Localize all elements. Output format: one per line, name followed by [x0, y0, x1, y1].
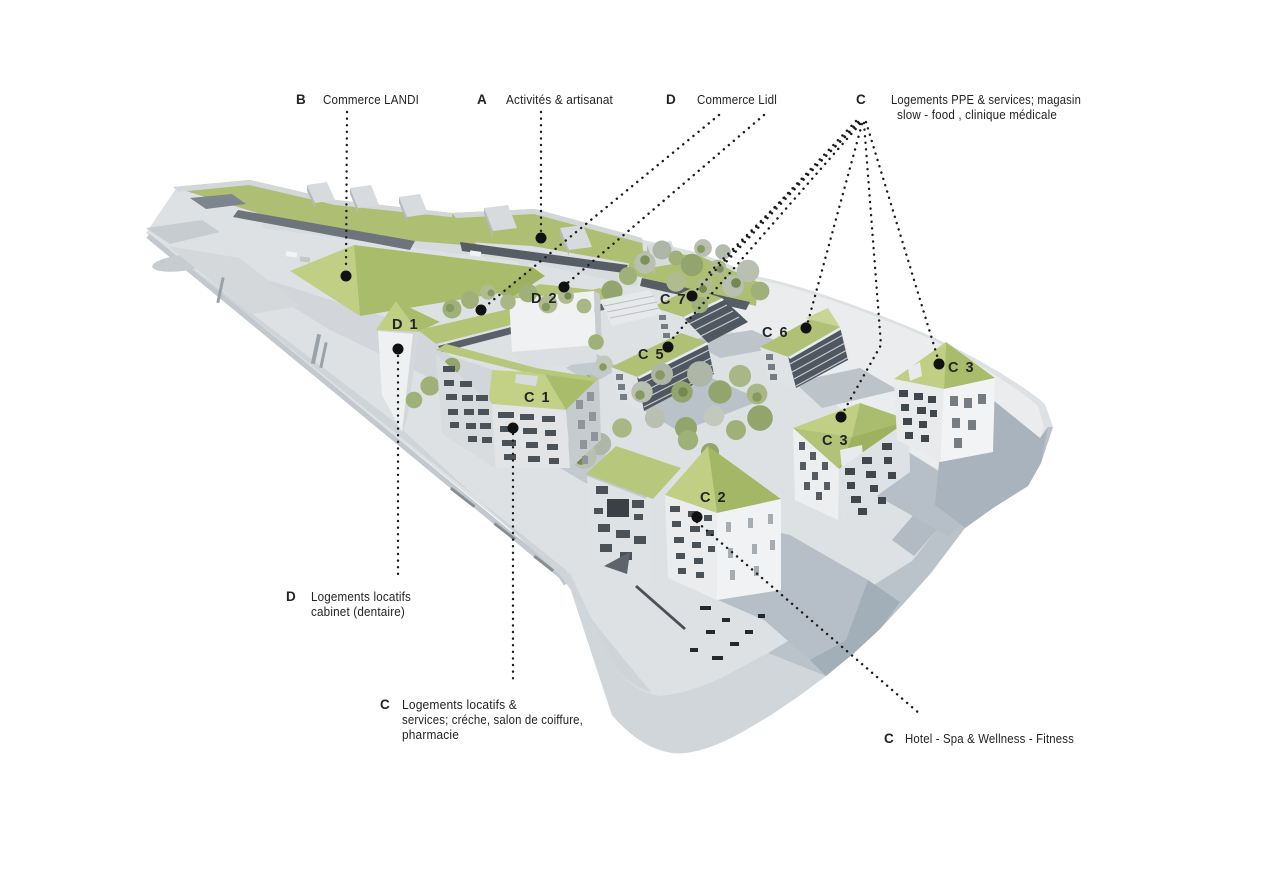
svg-text:pharmacie: pharmacie [402, 727, 459, 742]
svg-text:D: D [286, 589, 296, 604]
svg-text:C 6: C 6 [762, 325, 789, 341]
svg-text:slow - food , clinique médical: slow - food , clinique médicale [897, 107, 1057, 122]
svg-text:C 3: C 3 [948, 360, 975, 376]
svg-text:C 5: C 5 [638, 347, 665, 363]
svg-text:Logements PPE & services; maga: Logements PPE & services; magasin [891, 92, 1081, 107]
svg-text:B: B [296, 92, 306, 107]
svg-text:cabinet (dentaire): cabinet (dentaire) [311, 604, 405, 619]
svg-text:Logements locatifs &: Logements locatifs & [402, 697, 517, 712]
svg-text:C: C [884, 731, 894, 746]
svg-text:Commerce LANDI: Commerce LANDI [323, 92, 419, 107]
svg-text:C: C [380, 697, 390, 712]
svg-text:D 1: D 1 [392, 317, 419, 333]
svg-text:Hotel - Spa & Wellness - Fitn: Hotel - Spa & Wellness - Fitness [905, 731, 1074, 746]
svg-text:A: A [477, 92, 487, 107]
svg-text:Activités & artisanat: Activités & artisanat [506, 92, 613, 107]
svg-text:services; créche, salon de coi: services; créche, salon de coiffure, [402, 712, 583, 727]
svg-text:C: C [856, 92, 866, 107]
svg-text:Commerce Lidl: Commerce Lidl [697, 92, 777, 107]
svg-text:C 2: C 2 [700, 490, 727, 506]
svg-text:Logements locatifs: Logements locatifs [311, 589, 411, 604]
svg-text:C 7: C 7 [660, 292, 687, 308]
svg-text:D: D [666, 92, 676, 107]
svg-text:C 1: C 1 [524, 390, 551, 406]
svg-text:D 2: D 2 [531, 291, 558, 307]
svg-text:C 3: C 3 [822, 433, 849, 449]
